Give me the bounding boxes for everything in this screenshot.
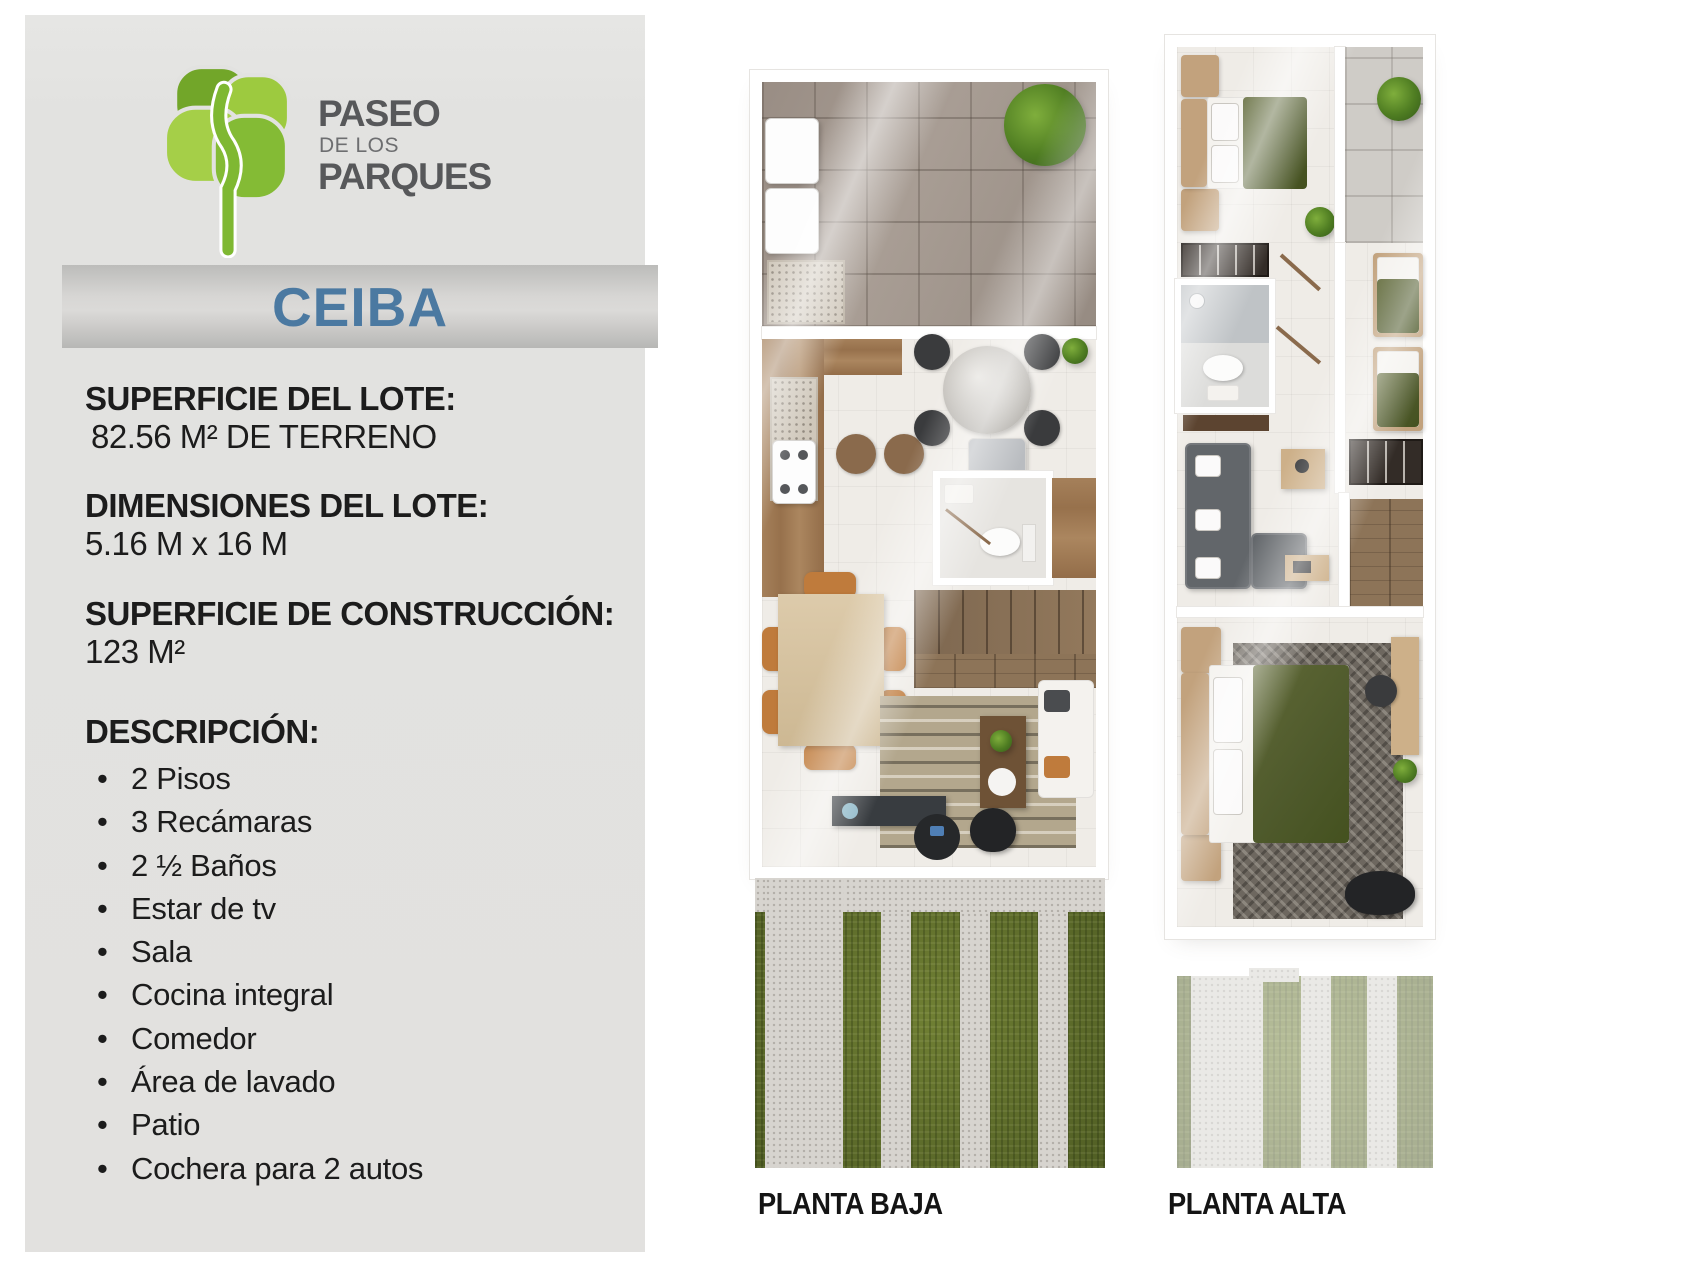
list-item: Cochera para 2 autos xyxy=(97,1147,423,1190)
stair-rail xyxy=(1280,254,1321,292)
bed-duvet xyxy=(1243,97,1307,189)
sofa-pillow xyxy=(1044,756,1070,778)
burner xyxy=(798,450,808,460)
decor-tray xyxy=(988,768,1016,796)
laptop xyxy=(1293,561,1311,573)
dining-chair-dark xyxy=(914,410,950,446)
driveway-strip xyxy=(960,912,990,1168)
desk-chair xyxy=(1365,675,1397,707)
stair-rail xyxy=(1276,325,1321,364)
spec-lot-surface: SUPERFICIE DEL LOTE: 82.56 M² DE TERRENO xyxy=(85,380,645,456)
burner xyxy=(780,450,790,460)
list-item: 3 Recámaras xyxy=(97,800,423,843)
bed-pillow xyxy=(1211,103,1239,141)
logo-word-parques: PARQUES xyxy=(318,158,491,195)
round-marble-table xyxy=(943,346,1031,434)
sofa-pillow xyxy=(1195,455,1221,477)
brand-wordmark: PASEO DE LOS PARQUES xyxy=(318,95,491,195)
driveway-strip xyxy=(881,912,911,1168)
driveway-strip xyxy=(1038,912,1068,1168)
bar-stool xyxy=(836,434,876,474)
small-plant xyxy=(1393,759,1417,783)
spec-lot-dimensions: DIMENSIONES DEL LOTE: 5.16 M x 16 M xyxy=(85,487,645,563)
spec-construction-surface: SUPERFICIE DE CONSTRUCCIÓN: 123 M² xyxy=(85,595,645,671)
closet xyxy=(1181,243,1269,277)
floor-plan-planta-alta xyxy=(1177,47,1423,927)
bed-headboard xyxy=(1181,673,1209,835)
burner xyxy=(780,484,790,494)
spec-label: SUPERFICIE DEL LOTE: xyxy=(85,380,645,418)
plan-label-planta-alta: PLANTA ALTA xyxy=(1168,1186,1346,1222)
front-yard-alta-ghost xyxy=(1177,968,1433,1168)
brand-logo: PASEO DE LOS PARQUES xyxy=(153,63,483,258)
dining-table xyxy=(778,594,884,746)
driveway-pad xyxy=(765,878,843,1168)
wall xyxy=(1177,607,1423,617)
tv-cabinet xyxy=(1183,415,1269,431)
list-item: Estar de tv xyxy=(97,887,423,930)
small-plant xyxy=(1062,338,1088,364)
spec-value: 5.16 M x 16 M xyxy=(85,525,645,563)
bed-headboard xyxy=(1181,99,1207,187)
round-side-table xyxy=(914,814,960,860)
list-item: Comedor xyxy=(97,1017,423,1060)
dining-chair-dark xyxy=(1024,410,1060,446)
sofa-pillow xyxy=(1195,557,1221,579)
twin-bed-duvet xyxy=(1377,279,1419,333)
wall xyxy=(1339,493,1349,615)
description-title: DESCRIPCIÓN: xyxy=(85,713,319,751)
dining-chair xyxy=(804,744,856,770)
sofa-pillow xyxy=(1195,509,1221,531)
stairwell xyxy=(1349,499,1423,609)
pantry-closet xyxy=(1052,478,1096,578)
tree-icon xyxy=(153,63,303,258)
shower-drain xyxy=(1189,293,1205,309)
bed-pillow xyxy=(1213,677,1243,743)
nightstand xyxy=(1181,55,1219,97)
spec-value: 123 M² xyxy=(85,633,645,671)
model-name: CEIBA xyxy=(272,275,448,339)
spec-label: SUPERFICIE DE CONSTRUCCIÓN: xyxy=(85,595,645,633)
bathroom xyxy=(1181,285,1269,407)
wall xyxy=(1335,47,1345,243)
bathroom-sink xyxy=(944,484,974,504)
list-item: Sala xyxy=(97,930,423,973)
lounge-chair xyxy=(970,808,1016,852)
coffee-table xyxy=(980,716,1026,808)
dining-chair-dark xyxy=(1024,334,1060,370)
white-sofa xyxy=(1038,680,1094,798)
plan-label-planta-baja: PLANTA BAJA xyxy=(758,1186,943,1222)
bathroom-sink xyxy=(1207,385,1239,401)
side-table xyxy=(1285,555,1329,581)
driveway-strip xyxy=(1367,976,1397,1168)
terrace xyxy=(1345,47,1423,243)
nightstand xyxy=(1181,189,1219,231)
decor-item xyxy=(1295,459,1309,473)
flyer-canvas: PASEO DE LOS PARQUES CEIBA SUPERFICIE DE… xyxy=(0,0,1698,1280)
laundry-sink xyxy=(767,260,845,324)
spec-label: DIMENSIONES DEL LOTE: xyxy=(85,487,645,525)
list-item: Área de lavado xyxy=(97,1060,423,1103)
list-item: Cocina integral xyxy=(97,973,423,1016)
patio-plant xyxy=(1004,84,1086,166)
spec-value: 82.56 M² DE TERRENO xyxy=(85,418,645,456)
dryer xyxy=(765,188,819,254)
driveway-pad xyxy=(1191,976,1263,1168)
walkway-step xyxy=(1249,968,1299,982)
model-name-banner: CEIBA xyxy=(62,265,658,348)
floor-plan-planta-baja xyxy=(762,82,1096,867)
driveway-strip xyxy=(1301,976,1331,1168)
terrace-plant xyxy=(1377,77,1421,121)
decor-item xyxy=(930,826,944,836)
logo-word-paseo: PASEO xyxy=(318,95,491,132)
bed-pillow xyxy=(1213,749,1243,815)
decor-clock xyxy=(842,803,858,819)
toilet xyxy=(1203,355,1243,381)
front-yard-baja xyxy=(755,878,1105,1168)
description-list: 2 Pisos 3 Recámaras 2 ½ Baños Estar de t… xyxy=(97,757,423,1190)
wall xyxy=(1335,243,1345,493)
list-item: Patio xyxy=(97,1103,423,1146)
shower xyxy=(1181,285,1269,343)
list-item: 2 ½ Baños xyxy=(97,844,423,887)
sectional-sofa xyxy=(1185,443,1251,589)
lounge-chair xyxy=(1345,871,1415,915)
closet xyxy=(1349,439,1423,485)
half-bathroom xyxy=(940,478,1046,578)
master-bed-duvet xyxy=(1253,665,1349,843)
dining-chair-dark xyxy=(914,334,950,370)
burner xyxy=(798,484,808,494)
logo-word-de-los: DE LOS xyxy=(319,135,491,156)
washer xyxy=(765,118,819,184)
list-item: 2 Pisos xyxy=(97,757,423,800)
twin-bed-duvet xyxy=(1377,373,1419,427)
stove xyxy=(772,440,816,504)
door-swing xyxy=(945,508,991,545)
bed-pillow xyxy=(1211,145,1239,183)
sofa-pillow xyxy=(1044,690,1070,712)
coffee-table xyxy=(1281,449,1325,489)
toilet-tank xyxy=(1022,524,1036,562)
small-plant xyxy=(990,730,1012,752)
info-panel: PASEO DE LOS PARQUES CEIBA SUPERFICIE DE… xyxy=(25,15,645,1252)
small-plant xyxy=(1305,207,1335,237)
staircase xyxy=(914,590,1096,654)
